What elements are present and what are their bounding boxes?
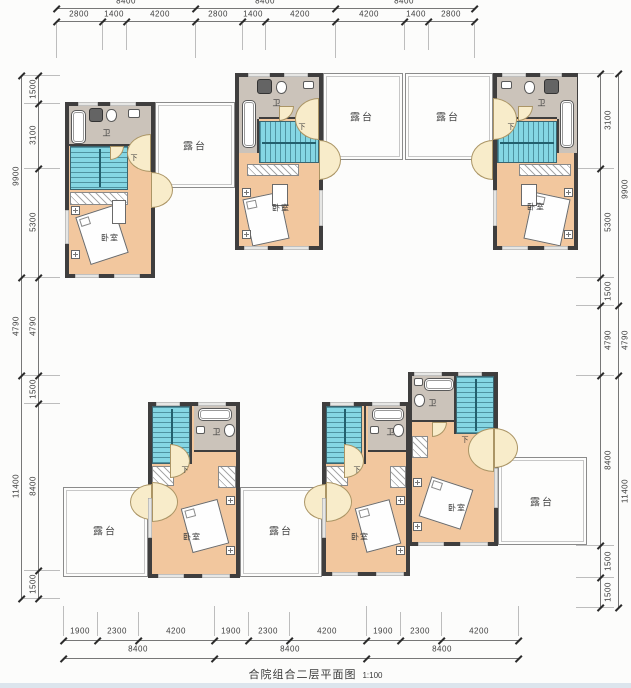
footer-strip [0, 683, 631, 688]
extension-line [576, 607, 614, 608]
window [78, 102, 98, 106]
bathtub [242, 100, 256, 148]
window [494, 468, 498, 508]
bath-label: 卫 [103, 128, 112, 139]
extension-line [404, 24, 405, 50]
window [75, 274, 99, 278]
dim-label: 4200 [150, 10, 170, 19]
sink [303, 81, 314, 89]
dimension-tick [515, 655, 522, 662]
window [65, 210, 69, 244]
terrace-label: 露台 [269, 523, 293, 538]
dim-label: 11400 [621, 479, 630, 503]
nightstand [242, 230, 251, 239]
extension-line [97, 612, 98, 636]
window [540, 73, 562, 77]
dim-label: 1500 [29, 574, 38, 594]
extension-line [265, 24, 266, 50]
toilet [276, 81, 287, 94]
window [330, 402, 354, 406]
window [284, 73, 308, 77]
nightstand [226, 496, 235, 505]
extension-line [441, 612, 442, 636]
window [458, 372, 482, 376]
wardrobe-hatch [218, 466, 236, 488]
extension-line [400, 612, 401, 636]
dim-label: 1900 [70, 627, 90, 636]
bathtub [424, 378, 454, 391]
terrace-label: 露台 [350, 109, 374, 124]
partition-wall [368, 450, 406, 452]
extension-line [56, 24, 57, 58]
toilet [524, 81, 535, 94]
dim-label: 5300 [604, 212, 613, 232]
dim-label: 1500 [604, 281, 613, 301]
dim-label: 4200 [290, 10, 310, 19]
window [372, 402, 400, 406]
window [110, 102, 136, 106]
extension-line [335, 24, 336, 58]
extension-line [195, 24, 196, 58]
window [198, 402, 226, 406]
bedroom-label: 卧室 [183, 532, 201, 543]
dim-label: 4200 [317, 627, 337, 636]
terrace-label: 露台 [93, 523, 117, 538]
sink [501, 81, 512, 89]
extension-line [576, 168, 614, 169]
dim-label: 4200 [166, 627, 186, 636]
bedroom-label: 卧室 [448, 503, 466, 514]
toilet [224, 424, 235, 437]
nightstand [564, 188, 573, 197]
partition-wall [557, 119, 559, 153]
bath-label: 卫 [538, 98, 547, 109]
dim-label: 3100 [604, 110, 613, 130]
extension-line [24, 598, 60, 599]
nightstand [564, 230, 573, 239]
dim-label: 8400 [128, 645, 148, 654]
stairs-down-label: 下 [462, 435, 469, 445]
dimension-line [618, 73, 619, 607]
extension-line [24, 75, 60, 76]
dim-label: 8400 [432, 645, 452, 654]
window [283, 246, 309, 250]
window [248, 73, 270, 77]
nightstand [226, 546, 235, 555]
window [376, 572, 404, 576]
stairs-down-label: 下 [508, 122, 515, 132]
extension-line [63, 606, 64, 636]
bathtub [198, 408, 232, 421]
bedroom-label: 卧室 [272, 203, 290, 214]
pillow [358, 508, 370, 518]
shower [89, 108, 103, 122]
partition-wall [194, 450, 236, 452]
dim-label: 1500 [604, 551, 613, 571]
title-text: 合院组合二层平面图 [248, 666, 356, 682]
pillow [79, 216, 91, 227]
extension-line [24, 375, 60, 376]
extension-line [576, 305, 614, 306]
dim-label: 4790 [621, 330, 630, 350]
dim-label: 1500 [29, 379, 38, 399]
extension-line [474, 24, 475, 58]
partition-wall [364, 406, 366, 464]
extension-line [289, 612, 290, 636]
window [158, 574, 184, 578]
bath-label: 卫 [273, 98, 282, 109]
dim-label: 11400 [12, 474, 21, 498]
dimension-tick [615, 604, 622, 611]
dim-label: 2300 [410, 627, 430, 636]
dim-label: 8400 [394, 0, 414, 6]
extension-line [24, 277, 60, 278]
extension-line [138, 612, 139, 636]
bath-label: 卫 [429, 398, 438, 409]
window [493, 190, 497, 226]
extension-line [518, 606, 519, 636]
window [544, 246, 568, 250]
stairs-down-label: 下 [299, 122, 306, 132]
floor-plan-drawing: 8400 8400 8400 2800 1400 4200 2800 1400 … [0, 0, 631, 688]
sink [128, 109, 140, 118]
bathtub [71, 110, 86, 144]
window [244, 246, 268, 250]
dimension-line [21, 75, 22, 598]
desk [112, 200, 126, 224]
dim-label: 4790 [12, 316, 21, 336]
stairs-down-label: 下 [182, 465, 189, 475]
dim-label: 4790 [604, 330, 613, 350]
extension-line [576, 375, 614, 376]
extension-line [576, 277, 614, 278]
bathtub [372, 408, 404, 421]
toilet [414, 394, 425, 407]
dim-label: 4200 [359, 10, 379, 19]
dim-label: 4200 [469, 627, 489, 636]
dim-label: 1400 [243, 10, 263, 19]
bedroom-label: 卧室 [527, 202, 545, 213]
stairs-down-label: 下 [131, 153, 138, 163]
dim-label: 1500 [29, 79, 38, 99]
nightstand [396, 496, 405, 505]
nightstand [396, 546, 405, 555]
dim-label: 1400 [406, 10, 426, 19]
toilet [106, 109, 117, 122]
shower [544, 79, 559, 94]
extension-line [576, 545, 614, 546]
wardrobe-hatch [519, 164, 571, 176]
bath-label: 卫 [387, 427, 396, 438]
dimension-tick [515, 637, 522, 644]
dim-label: 8400 [280, 645, 300, 654]
sink [414, 378, 423, 386]
extension-line [242, 24, 243, 50]
window [148, 498, 152, 538]
extension-line [248, 612, 249, 636]
nightstand [71, 206, 80, 215]
pillow [431, 480, 443, 491]
dim-label: 2300 [107, 627, 127, 636]
dim-label: 4790 [29, 316, 38, 336]
extension-line [214, 606, 215, 636]
terrace-label: 露台 [436, 109, 460, 124]
bathtub [560, 100, 574, 148]
window [460, 542, 488, 546]
dimension-tick [471, 5, 478, 12]
window [156, 402, 180, 406]
dim-label: 8400 [255, 0, 275, 6]
stairs [456, 376, 494, 434]
partition-wall [190, 406, 192, 464]
terrace-label: 露台 [183, 138, 207, 153]
extension-line [576, 73, 614, 74]
dimension-line [600, 73, 601, 607]
dim-label: 2800 [69, 10, 89, 19]
bath-label: 卫 [213, 427, 222, 438]
wardrobe-hatch [247, 164, 299, 176]
pillow [184, 508, 196, 518]
dim-label: 1900 [373, 627, 393, 636]
dimension-line [38, 75, 39, 598]
window [332, 572, 358, 576]
pillow [246, 200, 257, 210]
dim-label: 9900 [12, 166, 21, 186]
dim-label: 2800 [208, 10, 228, 19]
stairs-down-label: 下 [354, 465, 361, 475]
window [319, 190, 323, 226]
dim-label: 1400 [104, 10, 124, 19]
dimension-line [63, 658, 518, 659]
dim-label: 2300 [258, 627, 278, 636]
wardrobe-hatch [412, 436, 428, 458]
extension-line [428, 24, 429, 50]
extension-line [126, 24, 127, 50]
dim-label: 3100 [29, 125, 38, 145]
dim-label: 8400 [29, 476, 38, 496]
wardrobe-hatch [390, 466, 406, 488]
bedroom-label: 卧室 [351, 532, 369, 543]
extension-line [24, 168, 60, 169]
window [418, 542, 444, 546]
sink [196, 426, 205, 434]
extension-line [24, 103, 60, 104]
nightstand [413, 522, 422, 531]
sink [370, 426, 379, 434]
nightstand [413, 478, 422, 487]
window [502, 73, 526, 77]
dim-label: 8400 [116, 0, 136, 6]
extension-line [102, 24, 103, 50]
window [414, 372, 442, 376]
dim-label: 2800 [441, 10, 461, 19]
nightstand [242, 188, 251, 197]
extension-line [366, 606, 367, 636]
dim-label: 1900 [221, 627, 241, 636]
extension-line [24, 403, 60, 404]
bedroom-label: 卧室 [101, 233, 119, 244]
shower [257, 79, 272, 94]
extension-line [576, 577, 614, 578]
scale-label: 1:100 [362, 671, 382, 680]
dim-label: 9900 [621, 179, 630, 199]
dim-label: 1500 [604, 582, 613, 602]
window [202, 574, 230, 578]
terrace-label: 露台 [530, 494, 554, 509]
window [322, 498, 326, 538]
extension-line [24, 570, 60, 571]
window [114, 274, 140, 278]
window [502, 246, 528, 250]
nightstand [71, 250, 80, 259]
dim-label: 5300 [29, 212, 38, 232]
dim-label: 8400 [604, 450, 613, 470]
